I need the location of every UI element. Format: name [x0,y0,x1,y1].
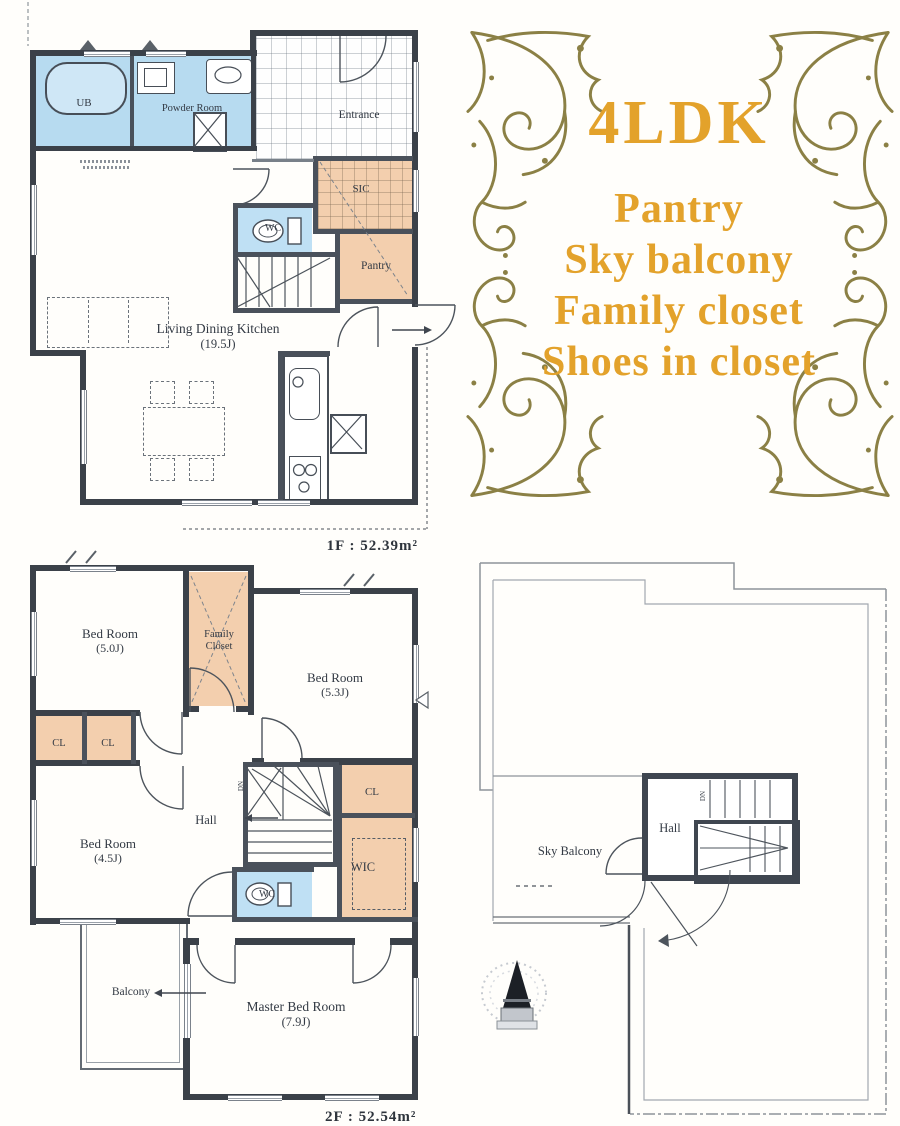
wall [390,938,418,945]
wall [642,875,798,881]
floor2-area-label: 2F : 52.54m² [325,1109,505,1126]
wall [232,867,237,922]
wall [412,347,418,505]
vanity [206,59,252,94]
room-bed1-label: Bed Room (5.0J) [50,627,170,656]
balcony-label: Balcony [98,986,164,999]
window [31,185,37,255]
room-cl-a-label: CL [38,738,80,750]
room-entrance-label: Entrance [300,109,418,122]
wall [30,146,257,151]
genkan-step [252,159,314,162]
wall [792,773,798,881]
feature-item: Family closet [460,286,898,337]
wall [233,203,238,313]
wall [337,917,418,922]
window [31,800,37,866]
wall [278,351,330,356]
window [258,500,310,506]
wall [232,917,342,922]
wall [278,351,283,505]
window [31,612,37,676]
tiny-note-text [80,160,132,163]
room-ldk-label: Living Dining Kitchen (19.5J) [128,321,308,351]
chair [150,458,175,481]
wall [243,762,339,767]
wall [233,308,335,313]
room-cl-c-label: CL [350,786,394,799]
room-pantry-label: Pantry [334,260,418,273]
wall [30,350,86,356]
chair [189,458,214,481]
window [300,589,350,595]
feature-item: Pantry [460,184,898,235]
room-family-closet-label: Family Closet [189,629,249,653]
wall [235,938,355,945]
wall [183,1094,418,1100]
sky-balcony-label: Sky Balcony [512,844,628,858]
wall [251,50,256,150]
balcony-slider-window [184,964,191,1038]
plan-type-title: 4LDK [460,88,898,159]
wall [250,30,418,36]
hall-2f-label: Hall [180,813,232,827]
window [146,51,186,57]
wall [130,56,134,146]
wall [183,1038,190,1100]
tiny-note-text [83,166,129,169]
room-master-label: Master Bed Room (7.9J) [214,999,378,1029]
wall [243,762,248,867]
room-entrance [256,36,412,159]
room-wc-2f-label: WC [244,889,290,901]
wall [313,156,318,234]
window [84,51,130,57]
kitchen-sink [289,368,320,420]
room-wic-label: WIC [338,860,388,874]
wall [233,203,317,208]
window [70,566,116,572]
roof-stairs-dn-label: DN [699,791,707,801]
room-bed2-label: Bed Room (5.3J) [275,671,395,700]
window [182,500,252,506]
room-sic-label: SIC [330,183,392,196]
feature-list: Pantry Sky balcony Family closet Shoes i… [460,184,898,388]
room-cl-b-label: CL [86,738,130,750]
chair [150,381,175,404]
room-wc-label: WC [250,223,296,235]
wall [335,299,412,304]
wall [183,938,190,964]
window [413,828,419,882]
window [60,919,116,925]
wall [232,867,314,872]
stove [289,456,321,500]
dining-table [143,407,225,456]
window [325,1095,379,1101]
chair [189,381,214,404]
wall [337,765,342,922]
wall [642,773,798,779]
wall [236,706,250,712]
window [413,170,419,212]
wall [30,50,257,56]
roof-hall-label: Hall [646,821,694,835]
wall [313,156,413,161]
sofa-divider [88,300,89,343]
floor1-area-label: 1F : 52.39m² [250,538,418,555]
room-bed3-label: Bed Room (4.5J) [48,837,168,866]
refrigerator-space [330,414,367,454]
wall [233,252,335,257]
room-powder-label: Powder Room [136,103,248,115]
room-ub-label: UB [54,97,114,110]
wall [183,706,199,712]
window [228,1095,282,1101]
window [413,645,419,703]
wall [30,565,254,571]
washer-drum [144,68,167,87]
wall [337,813,415,818]
window [81,390,87,464]
floorplan-scan: UB Powder Room Entrance WC SIC Pantry Li… [0,0,900,1125]
feature-item: Shoes in closet [460,337,898,388]
wall [131,712,136,764]
feature-item: Sky balcony [460,235,898,286]
stairs-dn-label: DN [237,781,245,791]
window [413,978,419,1036]
wall [313,229,413,234]
